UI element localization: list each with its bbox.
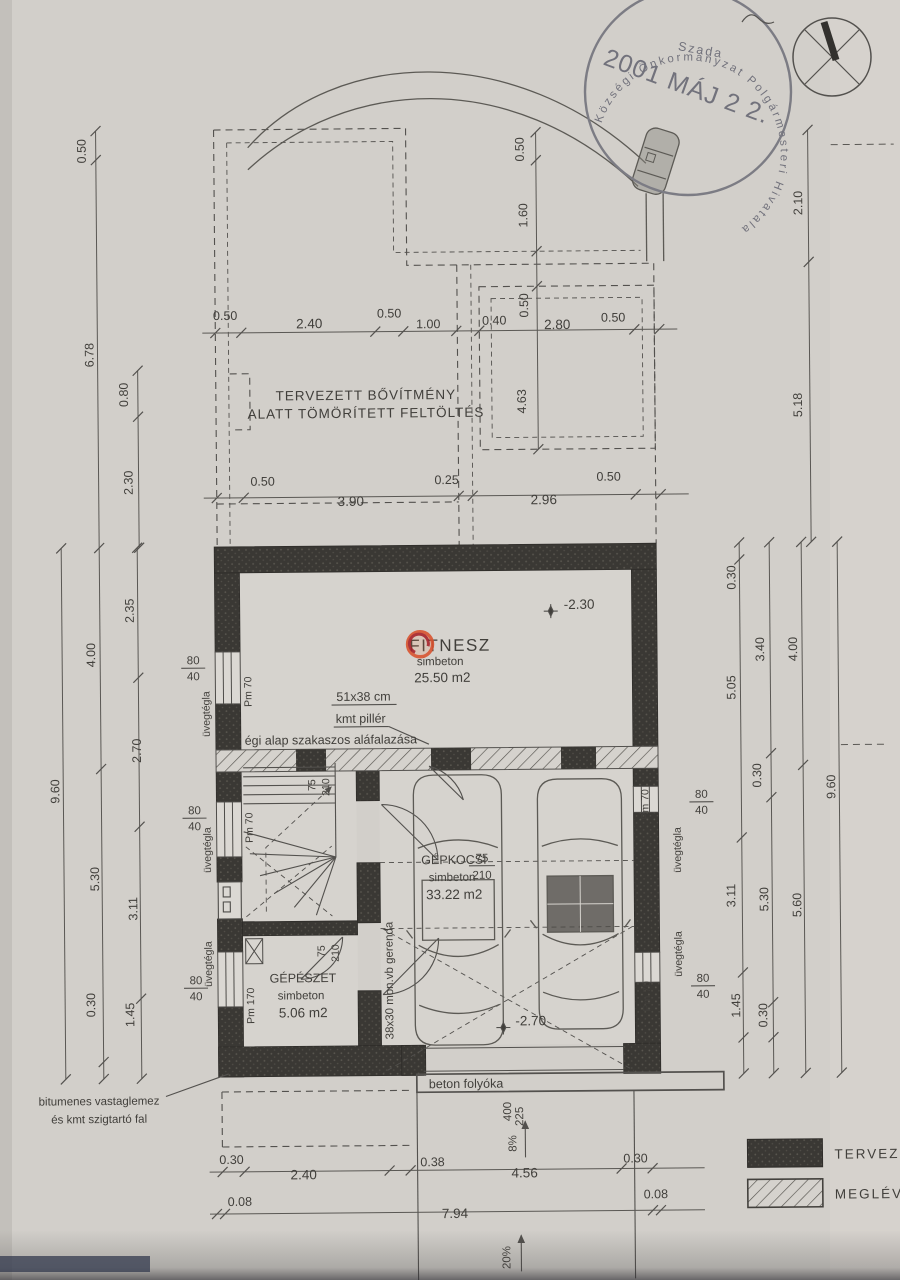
- dim-label: 5.30: [88, 867, 102, 891]
- fill-note-line1: TERVEZETT BŐVÍTMÉNY: [276, 387, 457, 404]
- door-height-label: 210: [472, 870, 491, 882]
- dim-label: 0.50: [596, 470, 620, 484]
- dim-label: 0.50: [513, 137, 527, 161]
- paper-right-edge: [830, 0, 900, 1280]
- parapet-label: Pm 70: [639, 789, 651, 820]
- room-floor-mech: simbeton: [278, 990, 325, 1002]
- dim-label: 2.40: [296, 316, 322, 331]
- dim-label: 1.60: [516, 203, 530, 227]
- dim-label: 2.40: [290, 1167, 316, 1182]
- wall-label-80: 80: [188, 805, 201, 817]
- dim-label: 0.40: [482, 313, 506, 327]
- dim-label: 5.18: [791, 393, 805, 417]
- door-height-label: 210: [330, 944, 342, 962]
- dim-label: 400: [502, 1102, 514, 1121]
- dim-label: 0.30: [724, 565, 738, 589]
- dim-label: 6.78: [82, 343, 96, 367]
- wall-label-40: 40: [188, 821, 201, 833]
- dim-label: 0.50: [75, 139, 89, 163]
- glassblock-label: üvegtégla: [202, 827, 214, 873]
- room-area-hobby: 25.50 m2: [414, 670, 470, 685]
- pillar-size-note: 51x38 cm: [336, 690, 390, 704]
- dim-label: 0.80: [117, 383, 131, 407]
- dim-label: 3.11: [126, 897, 140, 921]
- scan-bottom-shadow: [0, 1230, 900, 1280]
- dim-label: 1.00: [416, 317, 440, 331]
- wall-label-40: 40: [187, 671, 200, 683]
- legend-label-existing: MEGLÉVŐ: [835, 1186, 900, 1202]
- dim-label: 0.30: [750, 763, 764, 787]
- dim-label: 5.05: [724, 675, 738, 699]
- dim-label: 7.94: [442, 1206, 469, 1221]
- waterproofing-note-1: bitumenes vastaglemez: [39, 1096, 160, 1109]
- dim-label: 4.63: [515, 389, 529, 413]
- dim-label: 1.45: [729, 993, 743, 1017]
- dim-label: 2.70: [130, 738, 144, 762]
- dim-label: 5.30: [757, 887, 771, 911]
- wall-label-40: 40: [190, 991, 203, 1003]
- wall-label-80: 80: [697, 973, 710, 985]
- dim-label: 3.40: [753, 637, 767, 661]
- room-area-garage: 33.22 m2: [426, 887, 482, 902]
- room-area-mech: 5.06 m2: [279, 1005, 328, 1020]
- dim-label: 9.60: [48, 779, 62, 803]
- wall-label-40: 40: [695, 805, 708, 817]
- wall-label-40: 40: [697, 989, 710, 1001]
- scan-bottom-left-edge: [0, 1256, 150, 1272]
- ramp-slope-label: 8%: [507, 1135, 519, 1152]
- dim-label: 0.30: [219, 1153, 243, 1167]
- scanned-floor-plan: 0.50 6.78 0.80 2.30 9.60 4.00 5.30 0.30 …: [0, 0, 900, 1280]
- door-height-label: 210: [320, 778, 332, 796]
- door-width-label: 75: [475, 853, 488, 865]
- existing-wall-hatched: [216, 746, 658, 772]
- parapet-label: Pm 70: [641, 981, 653, 1012]
- dim-label: 0.38: [420, 1155, 444, 1169]
- dim-label: 0.30: [623, 1151, 647, 1165]
- watermark-logo: [407, 632, 432, 657]
- dim-label: 9.60: [824, 774, 838, 798]
- dim-label: 0.50: [213, 309, 237, 323]
- dim-label: 4.00: [84, 643, 98, 667]
- legend-swatch-existing: [748, 1179, 823, 1208]
- underpinning-note: égi alap szakaszos aláfalazása: [245, 732, 417, 748]
- dim-label: 1.45: [123, 1003, 137, 1027]
- parapet-label: Pm 170: [245, 987, 257, 1023]
- flue-box: [246, 939, 263, 964]
- level-label-upper: -2.30: [564, 597, 595, 612]
- glassblock-label: üvegtégla: [673, 931, 685, 977]
- waterproofing-note-2: és kmt szigtartó fal: [51, 1114, 147, 1127]
- floor-plan-drawing: 0.50 6.78 0.80 2.30 9.60 4.00 5.30 0.30 …: [0, 0, 900, 1280]
- legend-label-planned: TERVEZETT: [834, 1146, 900, 1162]
- dim-label: 2.10: [791, 191, 805, 215]
- door-width-label: 75: [316, 945, 328, 957]
- dim-label: 225: [514, 1107, 526, 1126]
- parapet-label: Pm 70: [243, 812, 255, 843]
- fill-note-line2: ALATT TÖMÖRÍTETT FELTÖLTÉS: [248, 405, 485, 422]
- dim-label: 2.80: [544, 317, 570, 332]
- dim-label: 0.30: [756, 1003, 770, 1027]
- paper-left-edge: [0, 0, 12, 1280]
- glassblock-label: üvegtégla: [200, 691, 212, 737]
- beam-note: 38x30 mon.vb gerenda: [383, 921, 396, 1039]
- glassblock-label: üvegtégla: [203, 941, 215, 987]
- level-label-garage: -2.70: [515, 1013, 546, 1028]
- pillar-name-note: kmt pillér: [336, 712, 386, 726]
- dim-label: 0.50: [517, 293, 531, 317]
- door-width-label: 75: [306, 779, 318, 791]
- dim-label: 4.56: [511, 1165, 537, 1180]
- dim-label: 0.50: [377, 306, 401, 320]
- glassblock-label: üvegtégla: [672, 827, 684, 873]
- wall-label-80: 80: [190, 975, 203, 987]
- room-floor-garage: simbeton: [429, 872, 476, 884]
- legend-swatch-planned: [747, 1139, 822, 1168]
- drain-label: beton folyóka: [429, 1077, 504, 1092]
- dim-label: 3.11: [724, 884, 738, 908]
- dim-label: 0.50: [601, 310, 625, 324]
- dim-label: 2.30: [122, 471, 136, 495]
- dim-label: 4.00: [786, 637, 800, 661]
- wall-label-80: 80: [695, 789, 708, 801]
- parapet-label: Pm 70: [242, 676, 254, 707]
- wall-label-80: 80: [187, 655, 200, 667]
- dim-label: 0.25: [434, 473, 458, 487]
- dim-label: 2.96: [531, 492, 557, 507]
- dim-label: 0.08: [644, 1187, 668, 1201]
- dim-label: 2.35: [123, 599, 137, 623]
- dim-label: 3.90: [338, 494, 364, 509]
- left-window: [218, 882, 241, 919]
- dim-label: 0.50: [250, 475, 274, 489]
- room-name-mech: GÉPÉSZET: [270, 970, 337, 986]
- dim-label: 0.08: [228, 1195, 252, 1209]
- dim-label: 5.60: [790, 893, 804, 917]
- dim-label: 0.30: [84, 993, 98, 1017]
